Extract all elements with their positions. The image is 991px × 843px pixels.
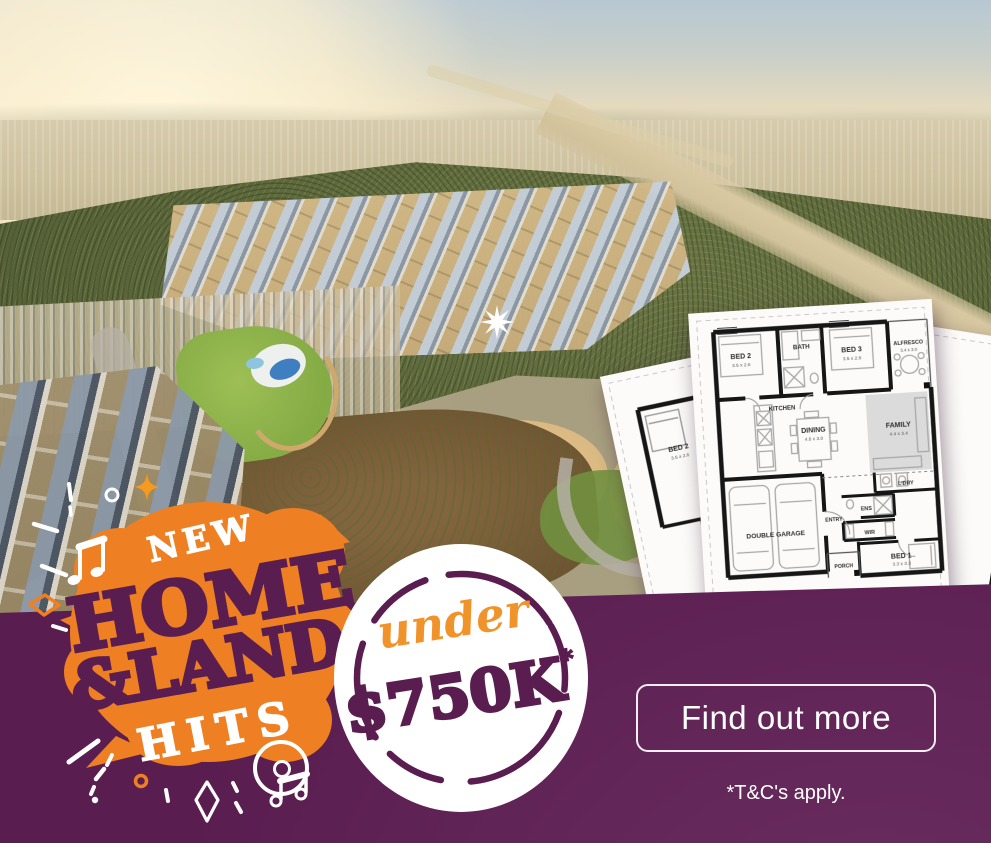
cta-area: Find out more *T&C's apply. [636, 684, 936, 805]
room-dims-bed3: 3.5 x 2.6 [843, 355, 862, 362]
home-and-land-badge: NEW HOME &LAND HITS [58, 492, 358, 782]
terms-text: *T&C's apply. [636, 782, 936, 805]
room-dims-alfresco: 3.4 x 3.0 [900, 347, 918, 353]
room-dims-bed2: 3.5 x 2.6 [732, 362, 751, 369]
room-label-bath: BATH [793, 343, 811, 351]
find-out-more-button[interactable]: Find out more [636, 684, 936, 752]
room-label-bed2: BED 2 [730, 353, 751, 361]
room-label-ldry: L'DRY [898, 480, 914, 487]
room-label-bed3: BED 3 [841, 346, 862, 354]
room-label-entry: ENTRY [825, 517, 843, 524]
room-label-ens: ENS [861, 506, 873, 513]
room-label-bed1: BED 1 [891, 553, 912, 561]
floor-plan-sheet-main: BED 2 3.5 x 2.6 BATH BED 3 3.5 x 2.6 ALF… [688, 299, 950, 613]
room-dims-bed1: 3.3 x 3.3 [892, 561, 911, 568]
room-label-porch: PORCH [834, 563, 853, 570]
room-dims-dining: 4.6 x 3.0 [805, 436, 824, 443]
promo-banner: BED 2 3.5 x 2.6 [0, 0, 991, 843]
room-dims-family: 4.4 x 3.4 [889, 431, 908, 438]
room-label-wir: WIR [864, 530, 875, 537]
price-roundel: under $750K* [333, 542, 589, 814]
